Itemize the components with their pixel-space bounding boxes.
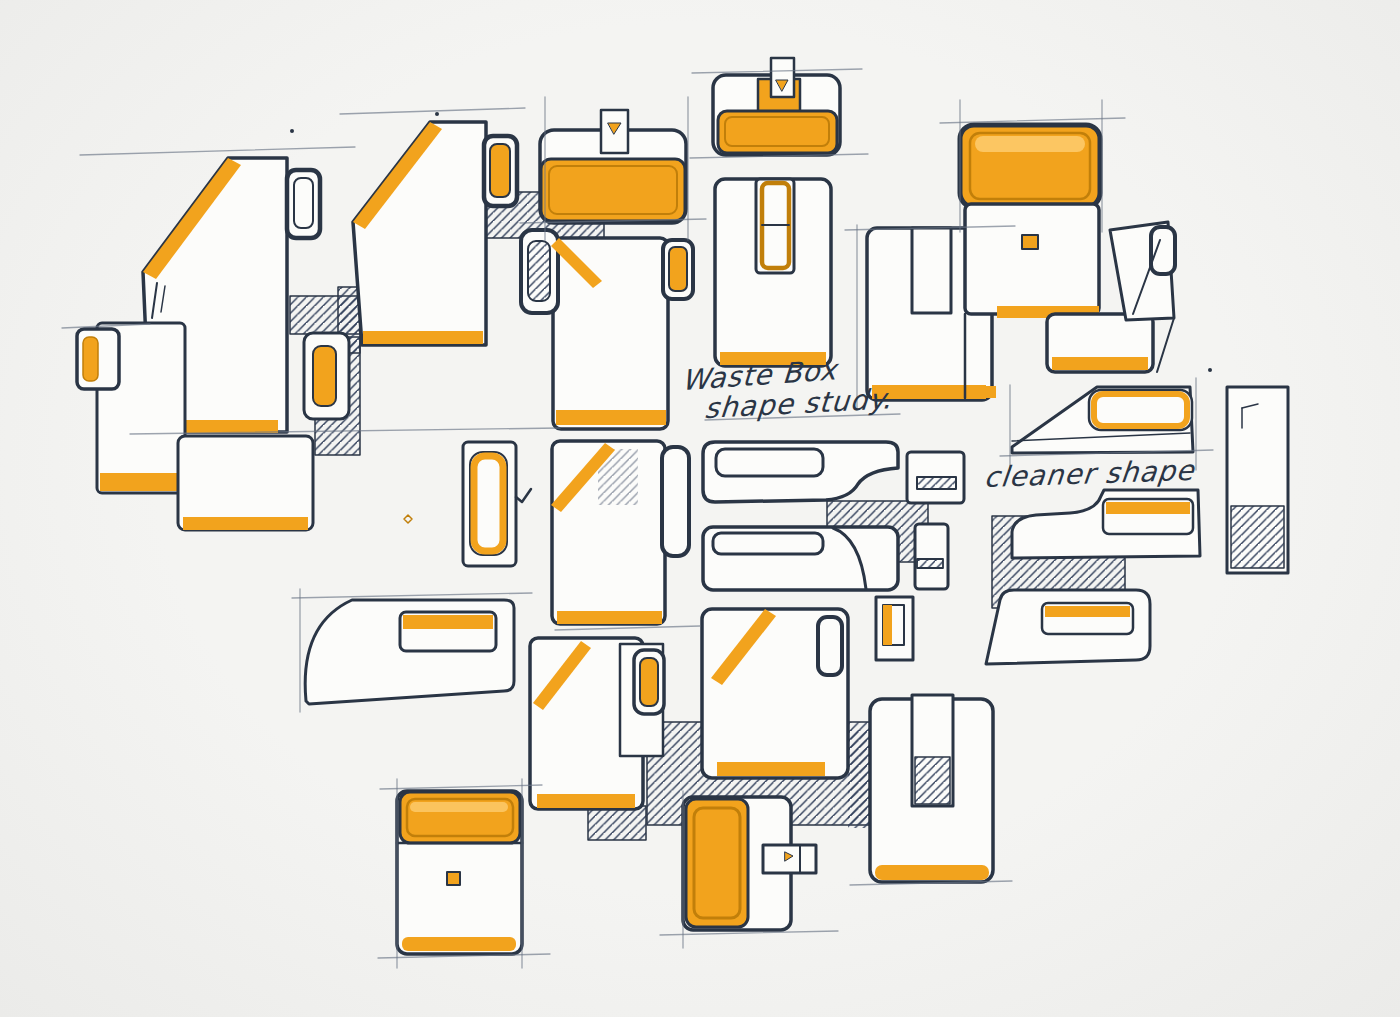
bin-c-body [178,436,313,530]
bin-m-handle-inner [640,658,658,706]
bin-f-base [556,410,666,425]
guide-18 [380,785,542,789]
bin-o-dot [447,872,460,885]
hatch-bottom-small-1 [588,806,646,840]
bin-f-right-handle-inner [669,247,687,291]
curved-tray-band [403,615,493,629]
diamond-mark [404,515,412,523]
dot-2 [290,129,294,133]
bin-b-base [100,473,185,491]
bin-j-left-base [968,386,996,398]
bin-n-handle [818,617,842,675]
bin-j-dot [1022,235,1038,249]
curve-box-upper-band [1106,502,1190,514]
tray-lower-side [915,524,948,589]
bin-p-slot-hatch [915,757,950,804]
bin-l-handle [662,447,689,556]
bin-f-body [553,238,668,429]
tray-lower-slot [713,533,823,554]
check-mark [516,489,531,502]
mini-card-stripe [883,605,892,645]
orange-block-fill [541,159,685,221]
guide-26 [555,626,700,630]
bin-e-handle-inner [490,144,510,197]
bin-p-base [875,865,989,880]
guide-10 [940,118,1125,123]
curve-box-lower-band [1045,606,1130,617]
bin-j-body [965,204,1099,314]
sketch-canvas [0,0,1400,1017]
tall-card-hatch [1231,506,1284,568]
bin-j-step-base [1052,357,1148,370]
bin-c-base [183,517,308,530]
bin-d-slot [313,346,336,406]
bin-i-slot [912,228,951,313]
bin-o-base [402,937,516,951]
bin-k-handle [1151,227,1175,274]
sketch-page: Waste Box shape study. cleaner shape [0,0,1400,1017]
tray-upper-slot [716,449,823,476]
dot-3 [1208,368,1212,372]
bin-n-base [717,762,825,776]
tray-lower-side-slot [917,559,943,568]
dot-1 [435,112,439,116]
bin-k-foot [1157,318,1174,372]
bin-b-handle-inner [83,337,98,381]
guide-16 [292,593,532,598]
guide-4 [340,108,525,114]
bin-f-left-handle-inner [528,241,550,301]
guide-1 [80,147,355,155]
tray-upper-side-slot [917,477,956,489]
bin-l-base [557,611,662,624]
bin-g-slot [771,58,794,97]
orange-panel-highlight [975,136,1085,152]
bin-o-lid-highlight [410,802,508,812]
orange-bin-tab [763,845,816,873]
bin-e-base [363,331,483,344]
bin-m-base [537,794,635,808]
